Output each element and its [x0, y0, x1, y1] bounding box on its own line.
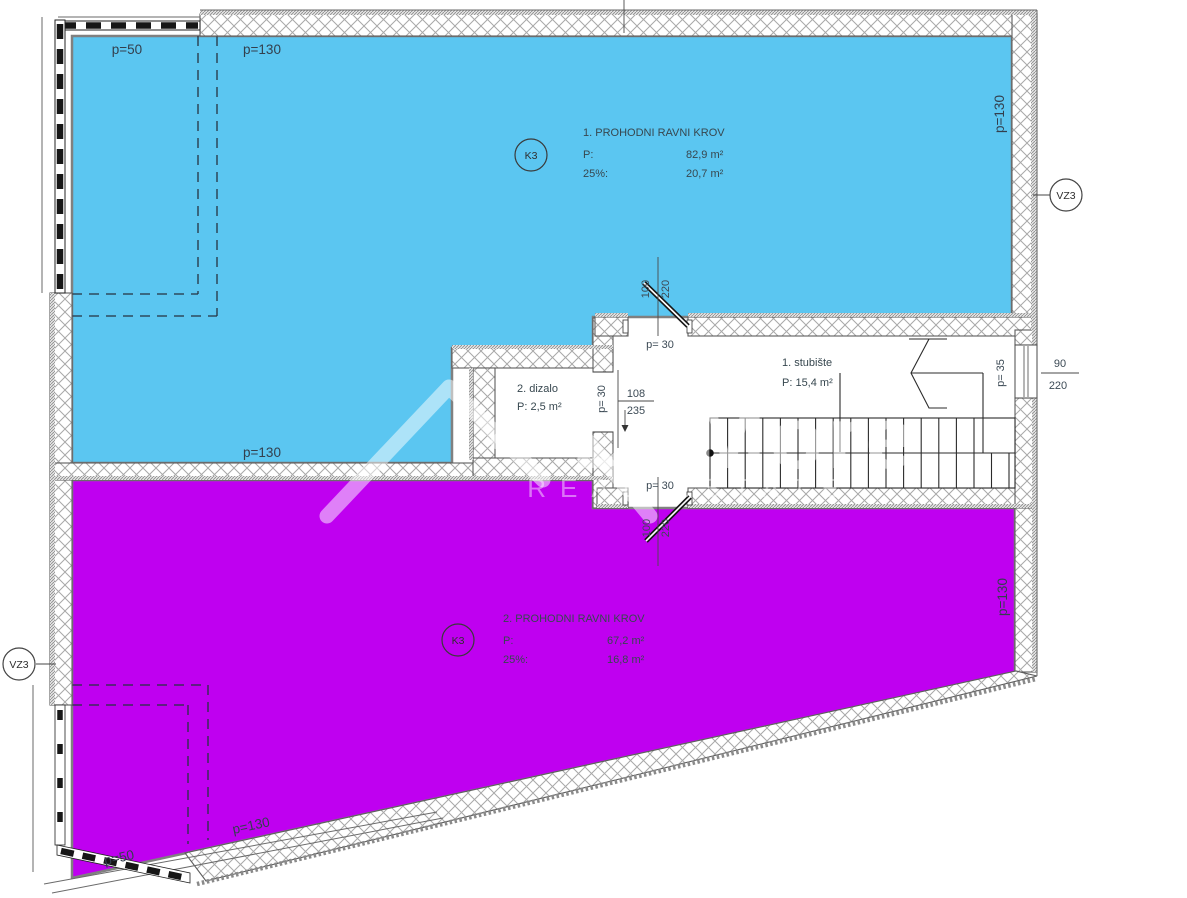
lower-door-parapet-label: p= 30 — [646, 480, 674, 492]
upper-door-height: 220 — [660, 280, 672, 298]
vz3-left-label: VZ3 — [9, 659, 28, 671]
parapet-p130-mid: p=130 — [243, 445, 281, 460]
parapet-p130-right-lower: p=130 — [995, 578, 1010, 616]
elevator-area: P: 2,5 m² — [517, 401, 562, 413]
elevator-door-height: 235 — [627, 405, 645, 417]
window-parapet-label: p= 35 — [995, 359, 1007, 387]
window-height: 220 — [1049, 380, 1067, 392]
roof1-area-label: P: — [583, 149, 593, 161]
vz3-right-label: VZ3 — [1056, 190, 1075, 202]
stairs-area: P: 15,4 m² — [782, 377, 833, 389]
roof2-title: 2. PROHODNI RAVNI KROV — [503, 613, 645, 625]
roof2-percent-label: 25%: — [503, 654, 528, 666]
roof2-tag: K3 — [452, 635, 465, 647]
watermark-subtitle: REAL ESTATE — [527, 473, 852, 503]
lower-door-width: 100 — [641, 519, 653, 537]
parapet-p50-top: p=50 — [112, 42, 142, 57]
upper-door-width: 100 — [640, 280, 652, 298]
elevator-parapet-label: p= 30 — [596, 385, 608, 413]
upper-door-parapet-label: p= 30 — [646, 339, 674, 351]
wall-elevator-top — [452, 348, 613, 368]
floor-plan-drawing: DeMore REAL ESTATE 108 235 p= 30 100 220… — [0, 0, 1187, 898]
floor-plan-canvas: DeMore REAL ESTATE 108 235 p= 30 100 220… — [0, 0, 1187, 898]
elevator-door-width: 108 — [627, 388, 645, 400]
roof1-percent-value: 20,7 m² — [686, 168, 724, 180]
stairs-title: 1. stubište — [782, 357, 832, 369]
roof1-tag: K3 — [525, 150, 538, 162]
roof2-area-value: 67,2 m² — [607, 635, 645, 647]
parapet-p130-top: p=130 — [243, 42, 281, 57]
lower-door-height: 220 — [660, 519, 672, 537]
roof1-area-value: 82,9 m² — [686, 149, 724, 161]
wall-stairs-top-b — [688, 317, 1037, 336]
parapet-p130-right-upper: p=130 — [992, 95, 1007, 133]
roof1-title: 1. PROHODNI RAVNI KROV — [583, 127, 725, 139]
window — [1015, 345, 1037, 398]
roof2-area-label: P: — [503, 635, 513, 647]
window-width: 90 — [1054, 358, 1066, 370]
roof1-percent-label: 25%: — [583, 168, 608, 180]
roof2-percent-value: 16,8 m² — [607, 654, 645, 666]
elevator-title: 2. dizalo — [517, 383, 558, 395]
wall-top — [200, 14, 1037, 36]
